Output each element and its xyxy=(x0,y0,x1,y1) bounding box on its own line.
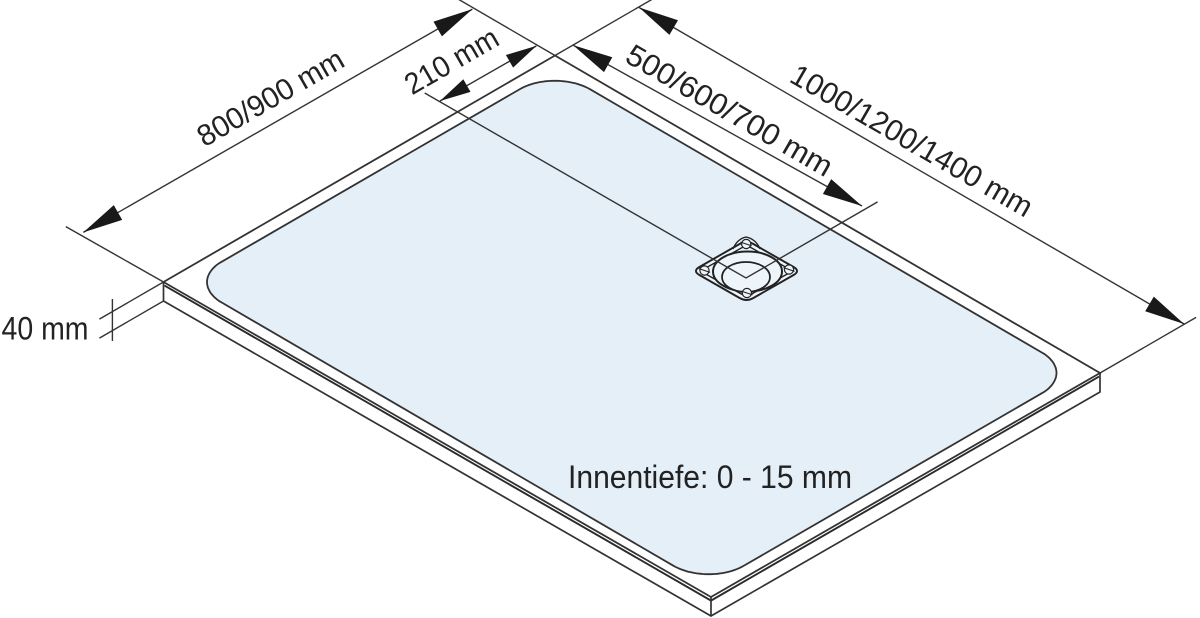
svg-text:1000/1200/1400 mm: 1000/1200/1400 mm xyxy=(785,58,1039,224)
svg-text:210 mm: 210 mm xyxy=(399,21,505,101)
svg-text:Innentiefe: 0 - 15 mm: Innentiefe: 0 - 15 mm xyxy=(568,459,852,495)
svg-text:800/900 mm: 800/900 mm xyxy=(192,43,351,154)
svg-text:40 mm: 40 mm xyxy=(2,311,89,347)
